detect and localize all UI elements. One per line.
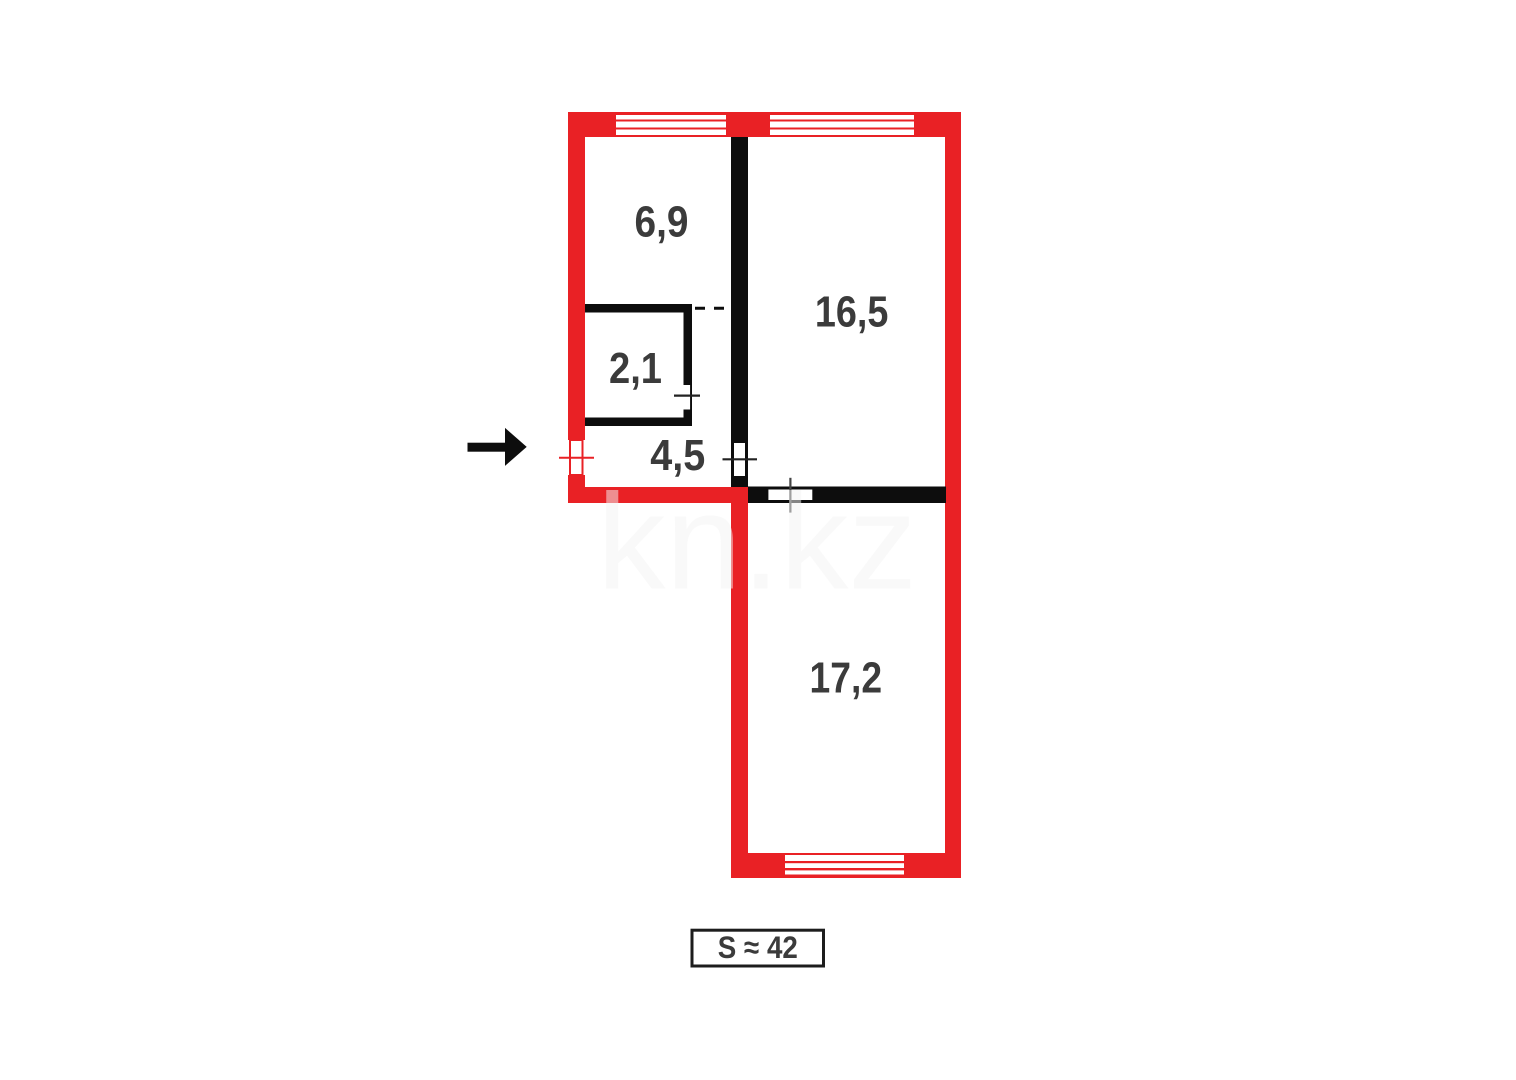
svg-text:kn.kz: kn.kz bbox=[597, 466, 917, 618]
svg-text:2,1: 2,1 bbox=[609, 345, 662, 393]
svg-text:17,2: 17,2 bbox=[810, 655, 883, 703]
svg-text:6,9: 6,9 bbox=[635, 198, 689, 246]
svg-text:S ≈ 42: S ≈ 42 bbox=[718, 929, 798, 965]
svg-text:16,5: 16,5 bbox=[815, 288, 889, 336]
